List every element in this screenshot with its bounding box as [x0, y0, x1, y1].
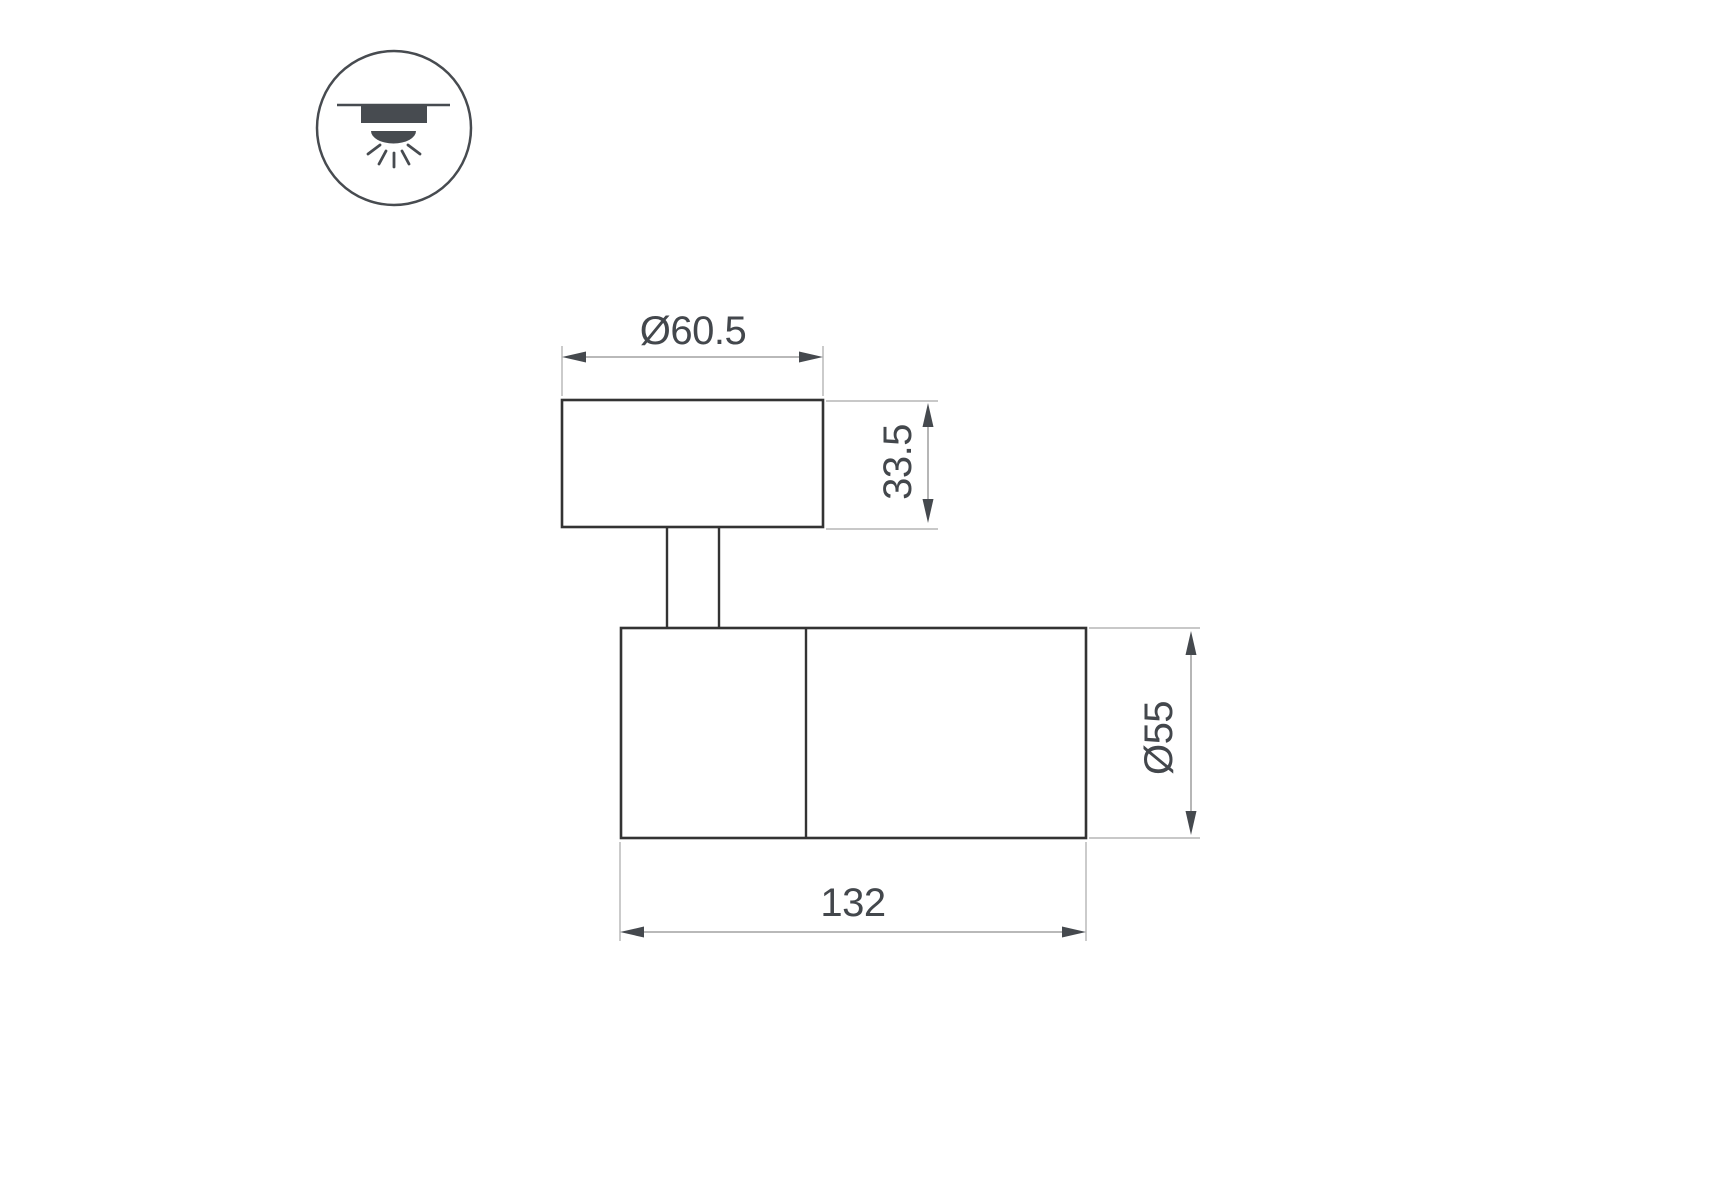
spec-sheet-page: Ø60.5 33.5 Ø55 132 [0, 0, 1715, 1200]
dimension-label-body-length: 132 [820, 881, 885, 925]
dimension-cap-diameter: Ø60.5 [562, 309, 823, 396]
dimension-label-cap-diameter: Ø60.5 [640, 309, 746, 353]
dimension-label-body-diameter: Ø55 [1137, 701, 1181, 775]
dimension-body-diameter: Ø55 [1089, 628, 1200, 838]
arrow-up-icon [923, 403, 934, 427]
dimension-body-length: 132 [620, 842, 1086, 941]
lamp-body [621, 628, 1086, 838]
arrow-down-icon [1186, 811, 1197, 835]
arrow-down-icon [923, 499, 934, 523]
icon-fixture-block [361, 105, 427, 123]
luminaire-outline [562, 400, 1086, 838]
technical-drawing: Ø60.5 33.5 Ø55 132 [0, 0, 1715, 1200]
dimension-cap-height: 33.5 [826, 401, 938, 529]
dimension-label-cap-height: 33.5 [876, 424, 920, 500]
icon-light-rays [368, 145, 420, 167]
arrow-left-icon [620, 927, 644, 938]
icon-badge-circle [317, 51, 471, 205]
surface-ceiling-downlight-icon [317, 51, 471, 205]
mounting-cap [562, 400, 823, 527]
arrow-right-icon [799, 352, 823, 363]
arrow-left-icon [562, 352, 586, 363]
arrow-up-icon [1186, 631, 1197, 655]
icon-lamp-dome [371, 131, 416, 144]
arrow-right-icon [1062, 927, 1086, 938]
